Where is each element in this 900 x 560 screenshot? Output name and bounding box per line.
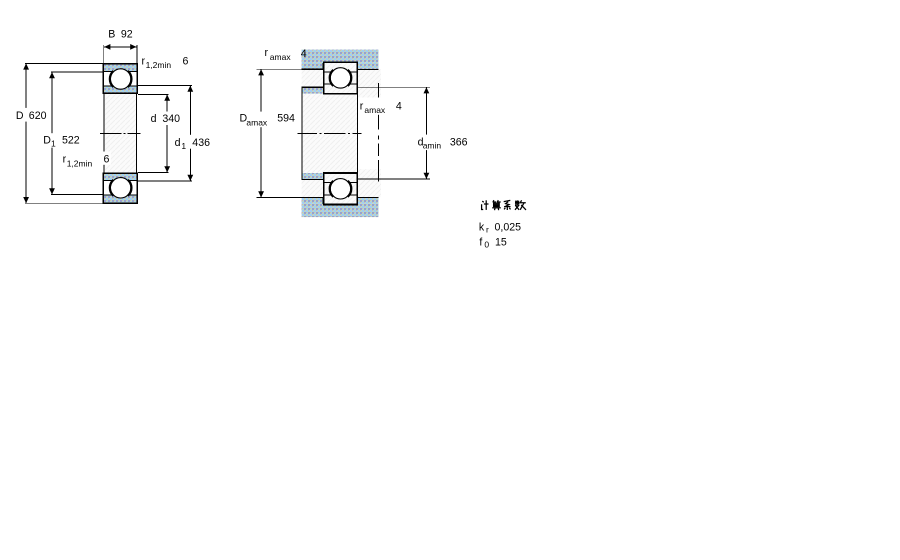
svg-text:6: 6 — [183, 56, 189, 68]
svg-text:amax: amax — [364, 105, 386, 115]
svg-text:amax: amax — [270, 52, 292, 62]
svg-text:r: r — [360, 100, 364, 112]
svg-text:amin: amin — [423, 141, 442, 151]
svg-text:B: B — [108, 29, 115, 41]
svg-text:366: 366 — [450, 136, 468, 148]
svg-text:620: 620 — [29, 110, 47, 122]
svg-text:1: 1 — [51, 139, 56, 149]
svg-text:r: r — [486, 224, 489, 234]
svg-text:D: D — [16, 110, 24, 122]
svg-text:d: d — [175, 137, 181, 149]
svg-text:522: 522 — [62, 134, 80, 146]
svg-text:amax: amax — [246, 117, 268, 127]
svg-text:92: 92 — [121, 29, 133, 41]
svg-text:0,025: 0,025 — [495, 221, 522, 233]
svg-text:594: 594 — [277, 113, 295, 125]
svg-text:1: 1 — [181, 141, 186, 151]
svg-text:4: 4 — [301, 48, 307, 60]
svg-text:r: r — [265, 47, 269, 59]
svg-text:f: f — [479, 236, 482, 248]
svg-text:1,2min: 1,2min — [67, 159, 93, 169]
svg-text:436: 436 — [192, 137, 210, 149]
svg-text:0: 0 — [484, 239, 489, 249]
svg-text:15: 15 — [495, 236, 507, 248]
svg-text:4: 4 — [396, 101, 402, 113]
svg-text:1,2min: 1,2min — [146, 60, 172, 70]
svg-text:k: k — [479, 221, 485, 233]
svg-text:6: 6 — [104, 154, 110, 166]
svg-text:d: d — [151, 113, 157, 125]
svg-text:340: 340 — [162, 113, 180, 125]
